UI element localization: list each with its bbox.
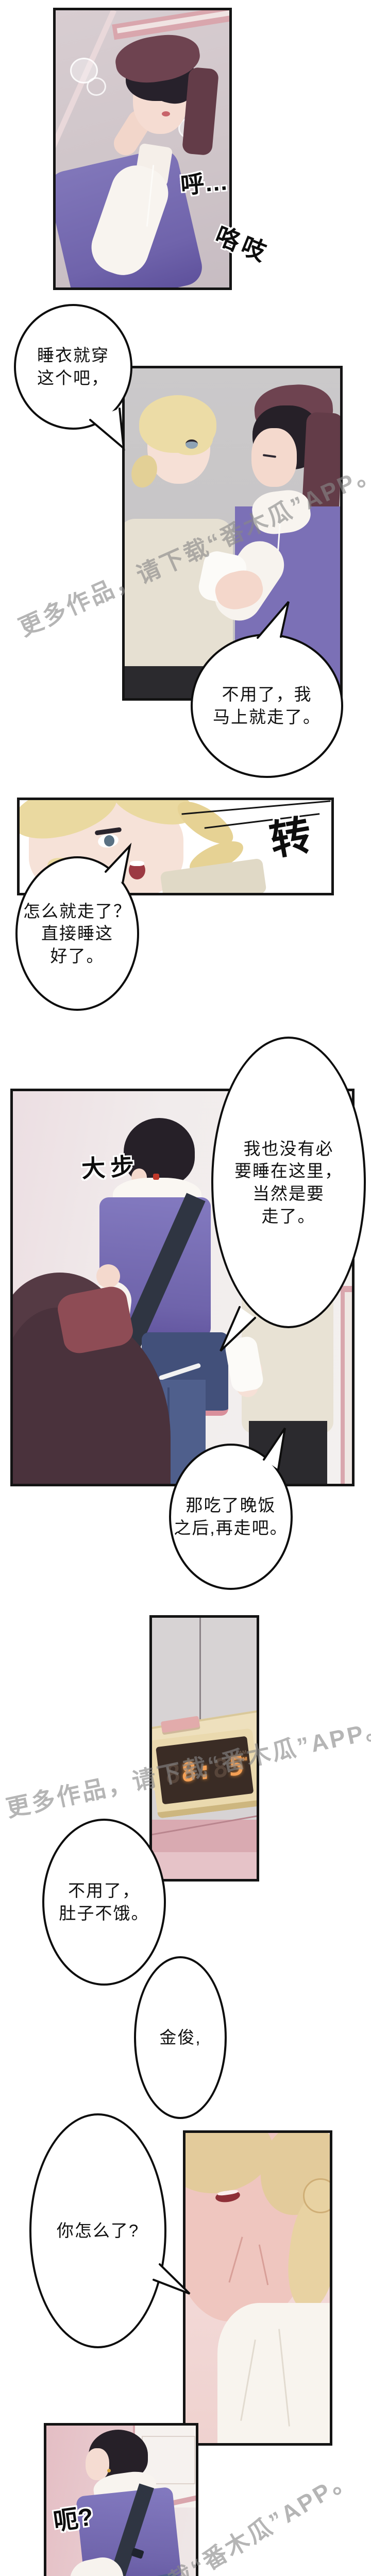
- panel-6-blonde-pink: [183, 2130, 332, 2446]
- bubble-h-tail: [148, 2259, 197, 2300]
- panel4-hood-tag: [153, 1174, 159, 1180]
- panel6-turtleneck: [217, 2303, 332, 2446]
- bubble-g-text: 金俊,: [159, 2026, 201, 2049]
- bubble-b-tail: [252, 597, 299, 646]
- speech-bubble-name: 金俊,: [134, 1956, 227, 2119]
- panel5-pink-band-light: [152, 1852, 259, 1882]
- sfx-breath: 呼…: [179, 163, 229, 201]
- speech-bubble-not-hungry: 不用了， 肚子不饿。: [42, 1819, 166, 1986]
- panel7-face: [86, 2448, 109, 2480]
- speech-bubble-leaving: 不用了，我 马上就走了。: [191, 634, 343, 778]
- bubble-a-tail-fill: [90, 409, 124, 448]
- panel1-mouth: [162, 111, 170, 116]
- panel-1-bathroom: [53, 8, 232, 290]
- speech-bubble-whats-wrong: 你怎么了?: [29, 2113, 166, 2348]
- bubble-d-text: 我也没有必 要睡在这里， 当然是要 走了。: [234, 1138, 343, 1227]
- sfx-stride-1: 大步: [80, 1147, 140, 1184]
- bubble-c-tail: [100, 841, 137, 890]
- panel5-cord: [199, 1618, 201, 1728]
- bubble-c-text: 怎么就走了？ 直接睡这 好了。: [23, 900, 131, 968]
- speech-bubble-no-need: 我也没有必 要睡在这里， 当然是要 走了。: [211, 1037, 366, 1328]
- bubble-b-text: 不用了，我 马上就走了。: [213, 683, 321, 728]
- bubble-d-tail: [215, 1302, 262, 1359]
- panel7-earring: [107, 2469, 111, 2472]
- bubble-a-text: 睡衣就穿 这个吧，: [37, 344, 109, 389]
- panel4-hand-skin: [96, 1264, 120, 1288]
- bubble-f-text: 不用了， 肚子不饿。: [59, 1879, 149, 1924]
- bubble-h-text: 你怎么了?: [57, 2219, 139, 2242]
- bubble-a-tail: [85, 403, 131, 455]
- bubble-e-tail: [259, 1423, 292, 1477]
- webtoon-page: 呼… 咯吱 睡衣就穿 这个吧， 更多作品，请下载“番木瓜”APP。 不用了，我 …: [0, 0, 371, 2576]
- panel1-steam-puff-2: [87, 77, 106, 96]
- sfx-huh: 呃?: [51, 2496, 95, 2537]
- bubble-e-text: 那吃了晚饭 之后,再走吧。: [174, 1494, 288, 1539]
- panel2-blonde-eye: [185, 439, 198, 449]
- panel4-frame-inner: [345, 1292, 353, 1484]
